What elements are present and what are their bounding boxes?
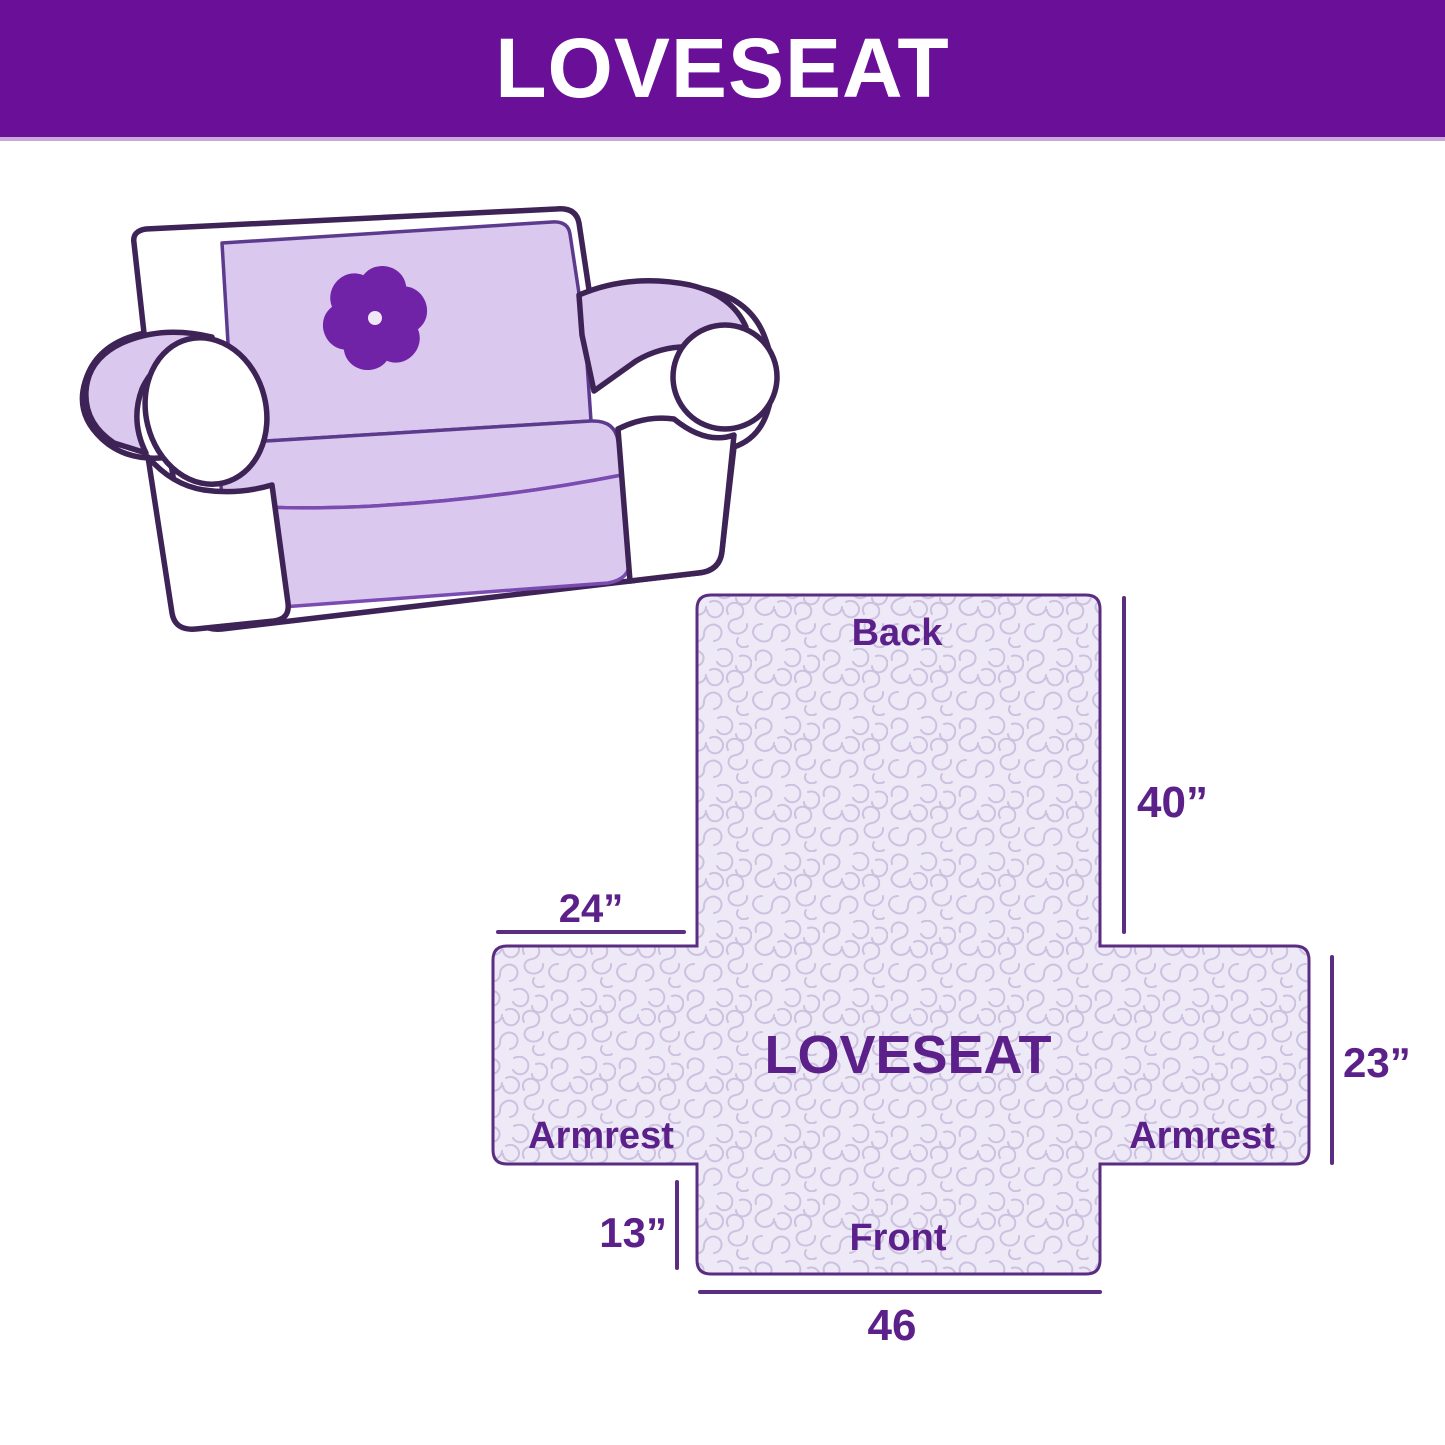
dim-armrest-top: 24” xyxy=(559,887,624,931)
cover-outline-shape xyxy=(493,595,1309,1274)
banner-separator xyxy=(0,137,1445,141)
right-arm-roll xyxy=(673,325,777,429)
header-banner: LOVESEAT xyxy=(0,0,1445,137)
dim-front-skirt: 13” xyxy=(599,1209,667,1256)
infographic-page: LOVESEAT xyxy=(0,0,1445,1445)
armrest-right-label: Armrest xyxy=(1129,1115,1275,1157)
armrest-left-label: Armrest xyxy=(528,1115,674,1157)
back-section-label: Back xyxy=(852,612,944,654)
page-title: LOVESEAT xyxy=(0,0,1445,137)
front-section-label: Front xyxy=(849,1217,946,1259)
dim-front-width: 46 xyxy=(868,1301,917,1350)
right-arm-body xyxy=(618,418,734,581)
cover-dimension-diagram: Back LOVESEAT Armrest Armrest Front 40” … xyxy=(480,580,1440,1380)
dim-armrest-side: 23” xyxy=(1343,1039,1411,1086)
dim-back-height: 40” xyxy=(1137,778,1208,827)
product-label: LOVESEAT xyxy=(764,1025,1051,1085)
